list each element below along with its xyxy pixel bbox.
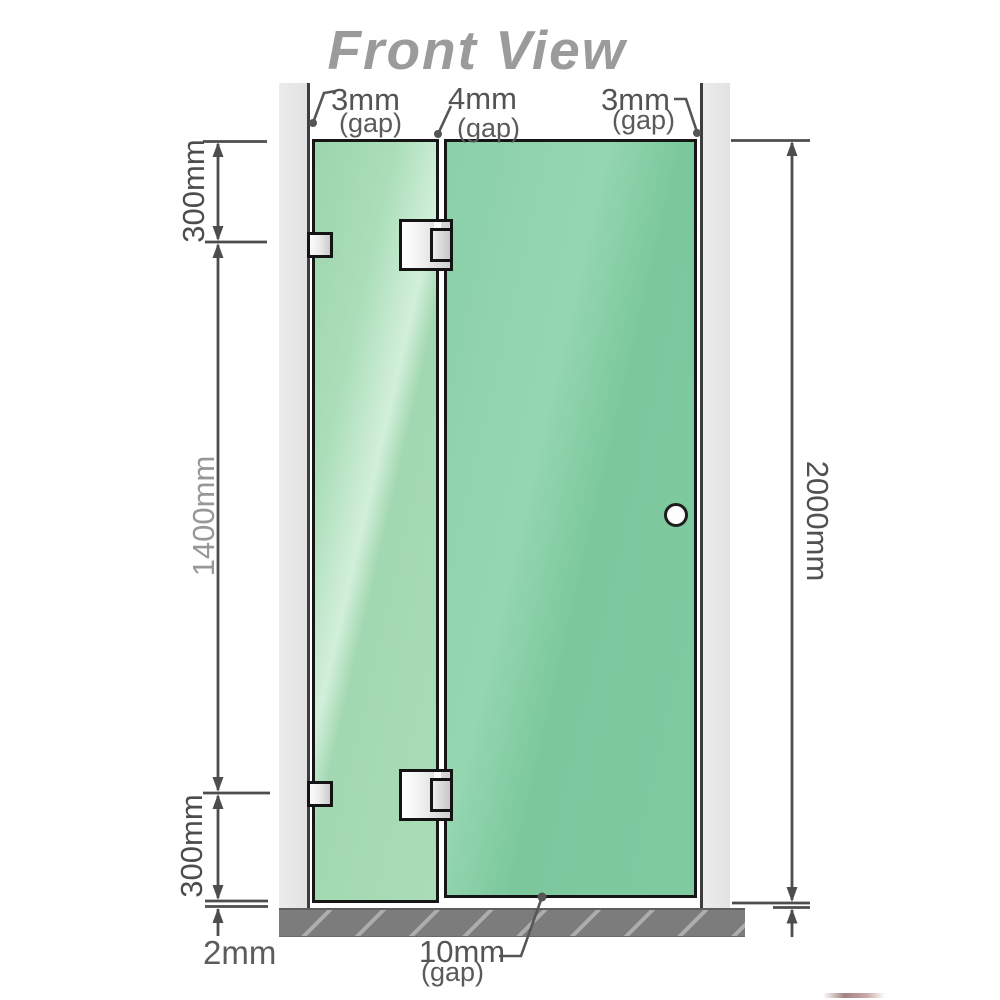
gap-suffix-left: (gap): [339, 108, 402, 139]
leader-lines: [313, 91, 697, 956]
dimension-left: 1400mm: [186, 456, 222, 577]
gap-suffix-right: (gap): [612, 105, 675, 136]
dimension-bottom-left: 300mm: [174, 794, 210, 897]
gap-suffix-middle: (gap): [457, 113, 520, 144]
dimension-lines: [0, 0, 1000, 1000]
leader-dots: [309, 119, 701, 902]
dimension-arrowheads: [213, 141, 798, 924]
gap-suffix-bottom: (gap): [421, 957, 484, 988]
front-view-diagram: Front View: [0, 0, 1000, 1000]
edge-artifact: [823, 993, 885, 998]
dimension-bottom-gap: 2mm: [203, 934, 276, 972]
gap-label-middle: 4mm: [448, 81, 517, 117]
dimension-top-left: 300mm: [176, 139, 212, 242]
dimension-right: 2000mm: [799, 461, 835, 582]
